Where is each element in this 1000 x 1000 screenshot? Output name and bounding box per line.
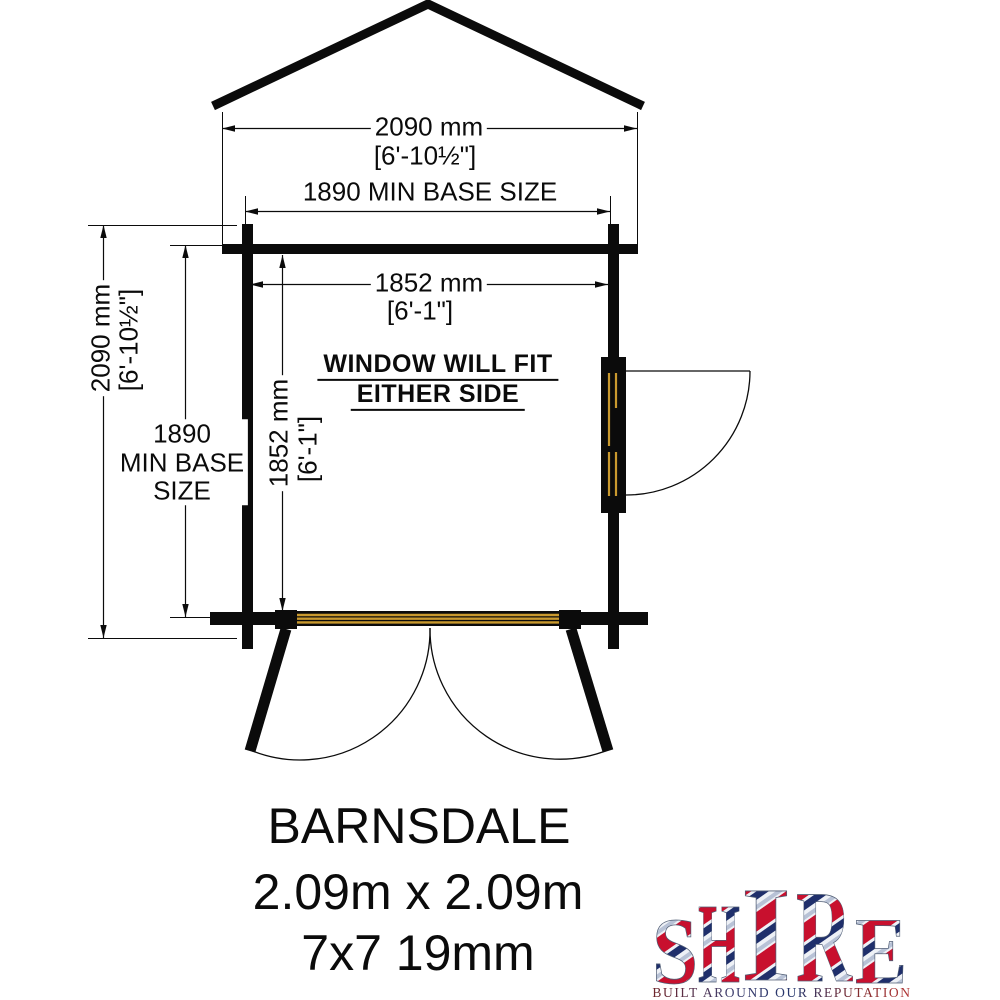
logo-letter-i: I — [741, 860, 791, 1000]
logo-tagline: BUILT AROUND OUR REPUTATION — [652, 985, 911, 1000]
window-frame — [601, 357, 626, 513]
window-note-line2: EITHER SIDE — [351, 381, 525, 411]
dim-left-base-line2: MIN BASE — [120, 448, 244, 477]
dim-inner-height-mm: 1852 mm — [265, 375, 292, 491]
double-door — [250, 610, 608, 760]
back-wall — [222, 244, 638, 254]
dim-left-base-line3: SIZE — [120, 476, 244, 505]
dim-top-base-label: 1890 MIN BASE SIZE — [303, 178, 557, 205]
shire-logo: S H I R E — [652, 860, 907, 1000]
dim-left-base-line1: 1890 — [120, 419, 244, 448]
door-leaf-left — [250, 629, 286, 751]
product-name: BARNSDALE — [268, 800, 571, 853]
product-spec: 7x7 19mm — [301, 927, 534, 980]
logo-letter-r: R — [796, 863, 853, 1000]
door-leaf-right — [571, 629, 608, 751]
dim-top-outer-mm: 2090 mm — [371, 113, 487, 140]
window-swing-arc — [626, 371, 750, 495]
product-dimensions: 2.09m x 2.09m — [253, 866, 584, 919]
door-jamb-left — [275, 610, 297, 629]
dim-inner-width-mm: 1852 mm — [371, 269, 487, 296]
dim-inner-height-ft: [6'-1"] — [294, 412, 321, 486]
side-window — [601, 357, 750, 513]
roof-apex-lines — [213, 4, 643, 106]
dim-left-base-label: 1890 MIN BASE SIZE — [116, 419, 248, 505]
dim-left-outer-ft: [6'-10½"] — [115, 285, 142, 395]
front-wall-right — [580, 612, 648, 625]
dim-left-outer-mm: 2090 mm — [87, 280, 114, 396]
door-threshold-wood-stripes — [297, 615, 559, 622]
logo-letter-h: H — [698, 880, 740, 1000]
dim-top-outer-ft: [6'-10½"] — [374, 142, 476, 169]
front-wall-left — [210, 612, 281, 625]
dim-inner-width-ft: [6'-1"] — [387, 297, 453, 324]
door-jamb-right — [559, 610, 581, 629]
window-note-line1: WINDOW WILL FIT — [317, 351, 558, 381]
floor-plan-page: S H I R E BUILT AROUND OUR REPUTATION 20… — [0, 0, 1000, 1000]
